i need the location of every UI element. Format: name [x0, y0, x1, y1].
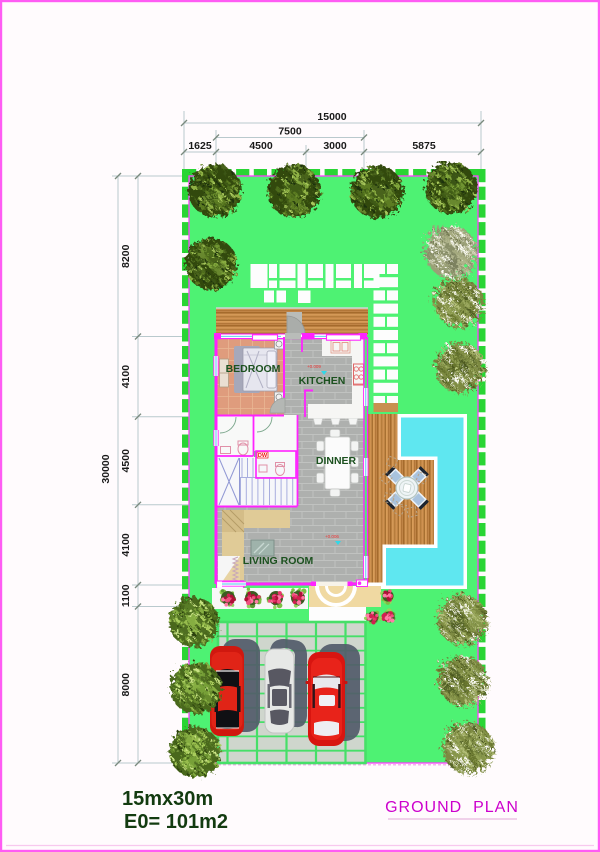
svg-text:8200: 8200 — [120, 244, 132, 268]
svg-text:8000: 8000 — [120, 673, 132, 697]
svg-text:GROUND PLAN: GROUND PLAN — [385, 799, 519, 816]
svg-text:15000: 15000 — [317, 111, 346, 123]
svg-text:1100: 1100 — [120, 584, 132, 607]
svg-text:BEDROOM: BEDROOM — [226, 363, 281, 375]
svg-text:4500: 4500 — [249, 140, 273, 152]
svg-text:7500: 7500 — [278, 126, 302, 138]
svg-text:30000: 30000 — [100, 454, 112, 483]
svg-text:1625: 1625 — [188, 140, 212, 152]
svg-text:4100: 4100 — [120, 533, 132, 557]
svg-text:5875: 5875 — [412, 140, 436, 152]
svg-text:DW: DW — [258, 453, 268, 459]
svg-text:KITCHEN: KITCHEN — [299, 375, 346, 387]
svg-text:15mx30m: 15mx30m — [122, 788, 213, 810]
svg-text:+0.009: +0.009 — [307, 364, 321, 369]
svg-text:4500: 4500 — [120, 449, 132, 473]
svg-text:E0= 101m2: E0= 101m2 — [124, 811, 228, 833]
svg-text:3000: 3000 — [323, 140, 347, 152]
svg-text:4100: 4100 — [120, 365, 132, 389]
svg-text:LIVING ROOM: LIVING ROOM — [243, 555, 314, 567]
svg-text:+0.006: +0.006 — [325, 534, 339, 539]
svg-text:DINNER: DINNER — [316, 455, 357, 467]
